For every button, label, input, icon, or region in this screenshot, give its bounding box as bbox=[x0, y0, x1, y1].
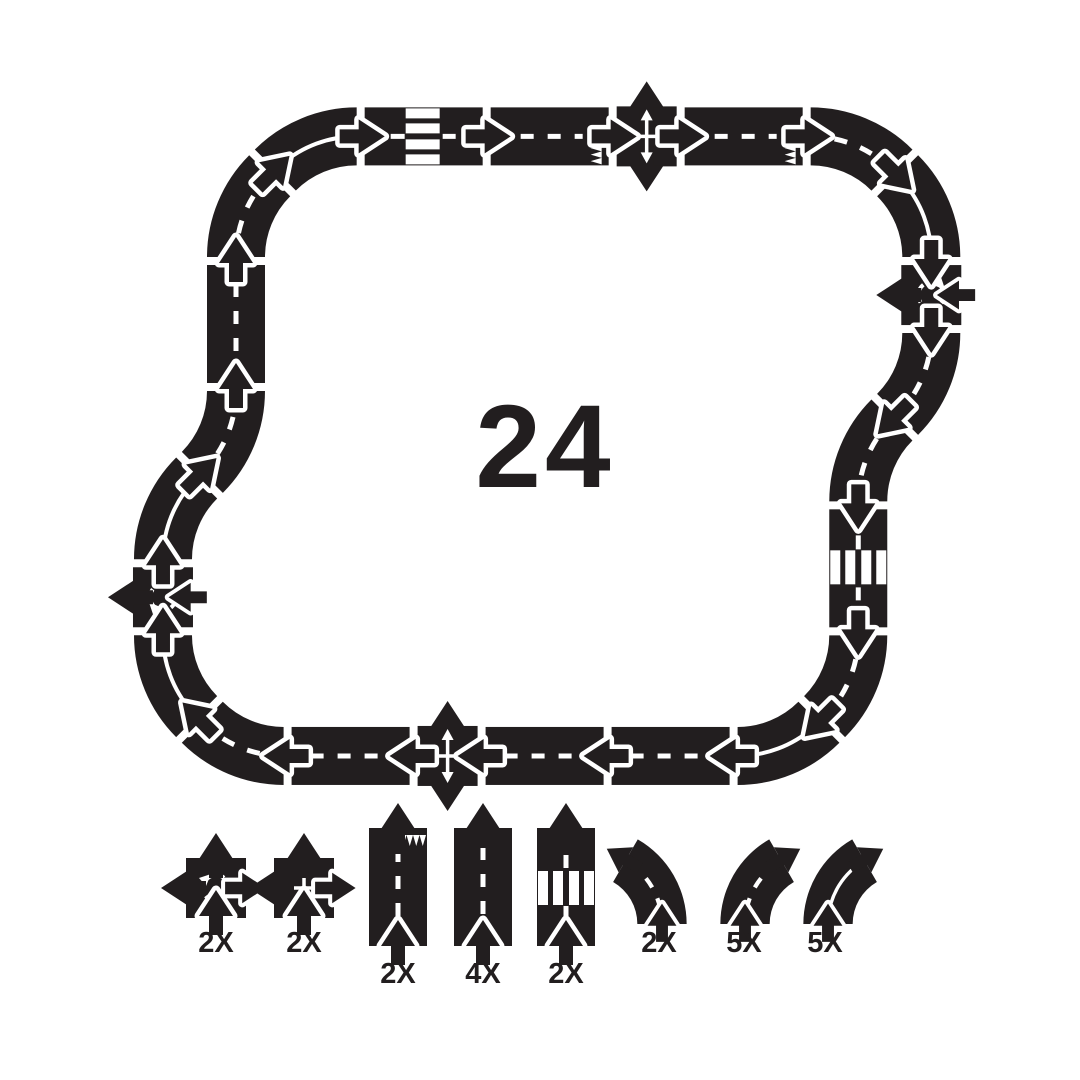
legend-curve-dashed-piece-icon bbox=[720, 836, 807, 942]
legend-count-curve-solid: 5X bbox=[807, 927, 843, 959]
legend-count-dead-end: 2X bbox=[380, 958, 416, 990]
product-diagram: 24 2X 2X 2X 4X 2X 2X 5X 5X bbox=[0, 0, 1080, 1080]
legend-count-curve-dashed: 5X bbox=[726, 927, 762, 959]
road-set-illustration: 24 2X 2X 2X 4X 2X 2X 5X 5X bbox=[0, 0, 1080, 1080]
legend-count-intersection: 2X bbox=[286, 927, 322, 959]
legend-dead-end-straight-piece-icon bbox=[369, 803, 427, 965]
legend: 2X 2X 2X 4X 2X 2X 5X 5X bbox=[161, 803, 890, 990]
legend-curve-left-piece-icon bbox=[600, 836, 687, 942]
legend-roundabout-piece-icon bbox=[161, 833, 266, 935]
legend-count-straight: 4X bbox=[465, 958, 501, 990]
legend-count-roundabout: 2X bbox=[198, 927, 234, 959]
legend-crosswalk-straight-piece-icon bbox=[537, 803, 595, 965]
legend-intersection-piece-icon bbox=[249, 833, 356, 935]
legend-curve-solid-line-piece-icon bbox=[803, 836, 890, 942]
legend-straight-piece-icon bbox=[454, 803, 512, 965]
legend-count-crosswalk: 2X bbox=[548, 958, 584, 990]
legend-count-curve-left: 2X bbox=[641, 927, 677, 959]
total-piece-count: 24 bbox=[475, 381, 614, 513]
